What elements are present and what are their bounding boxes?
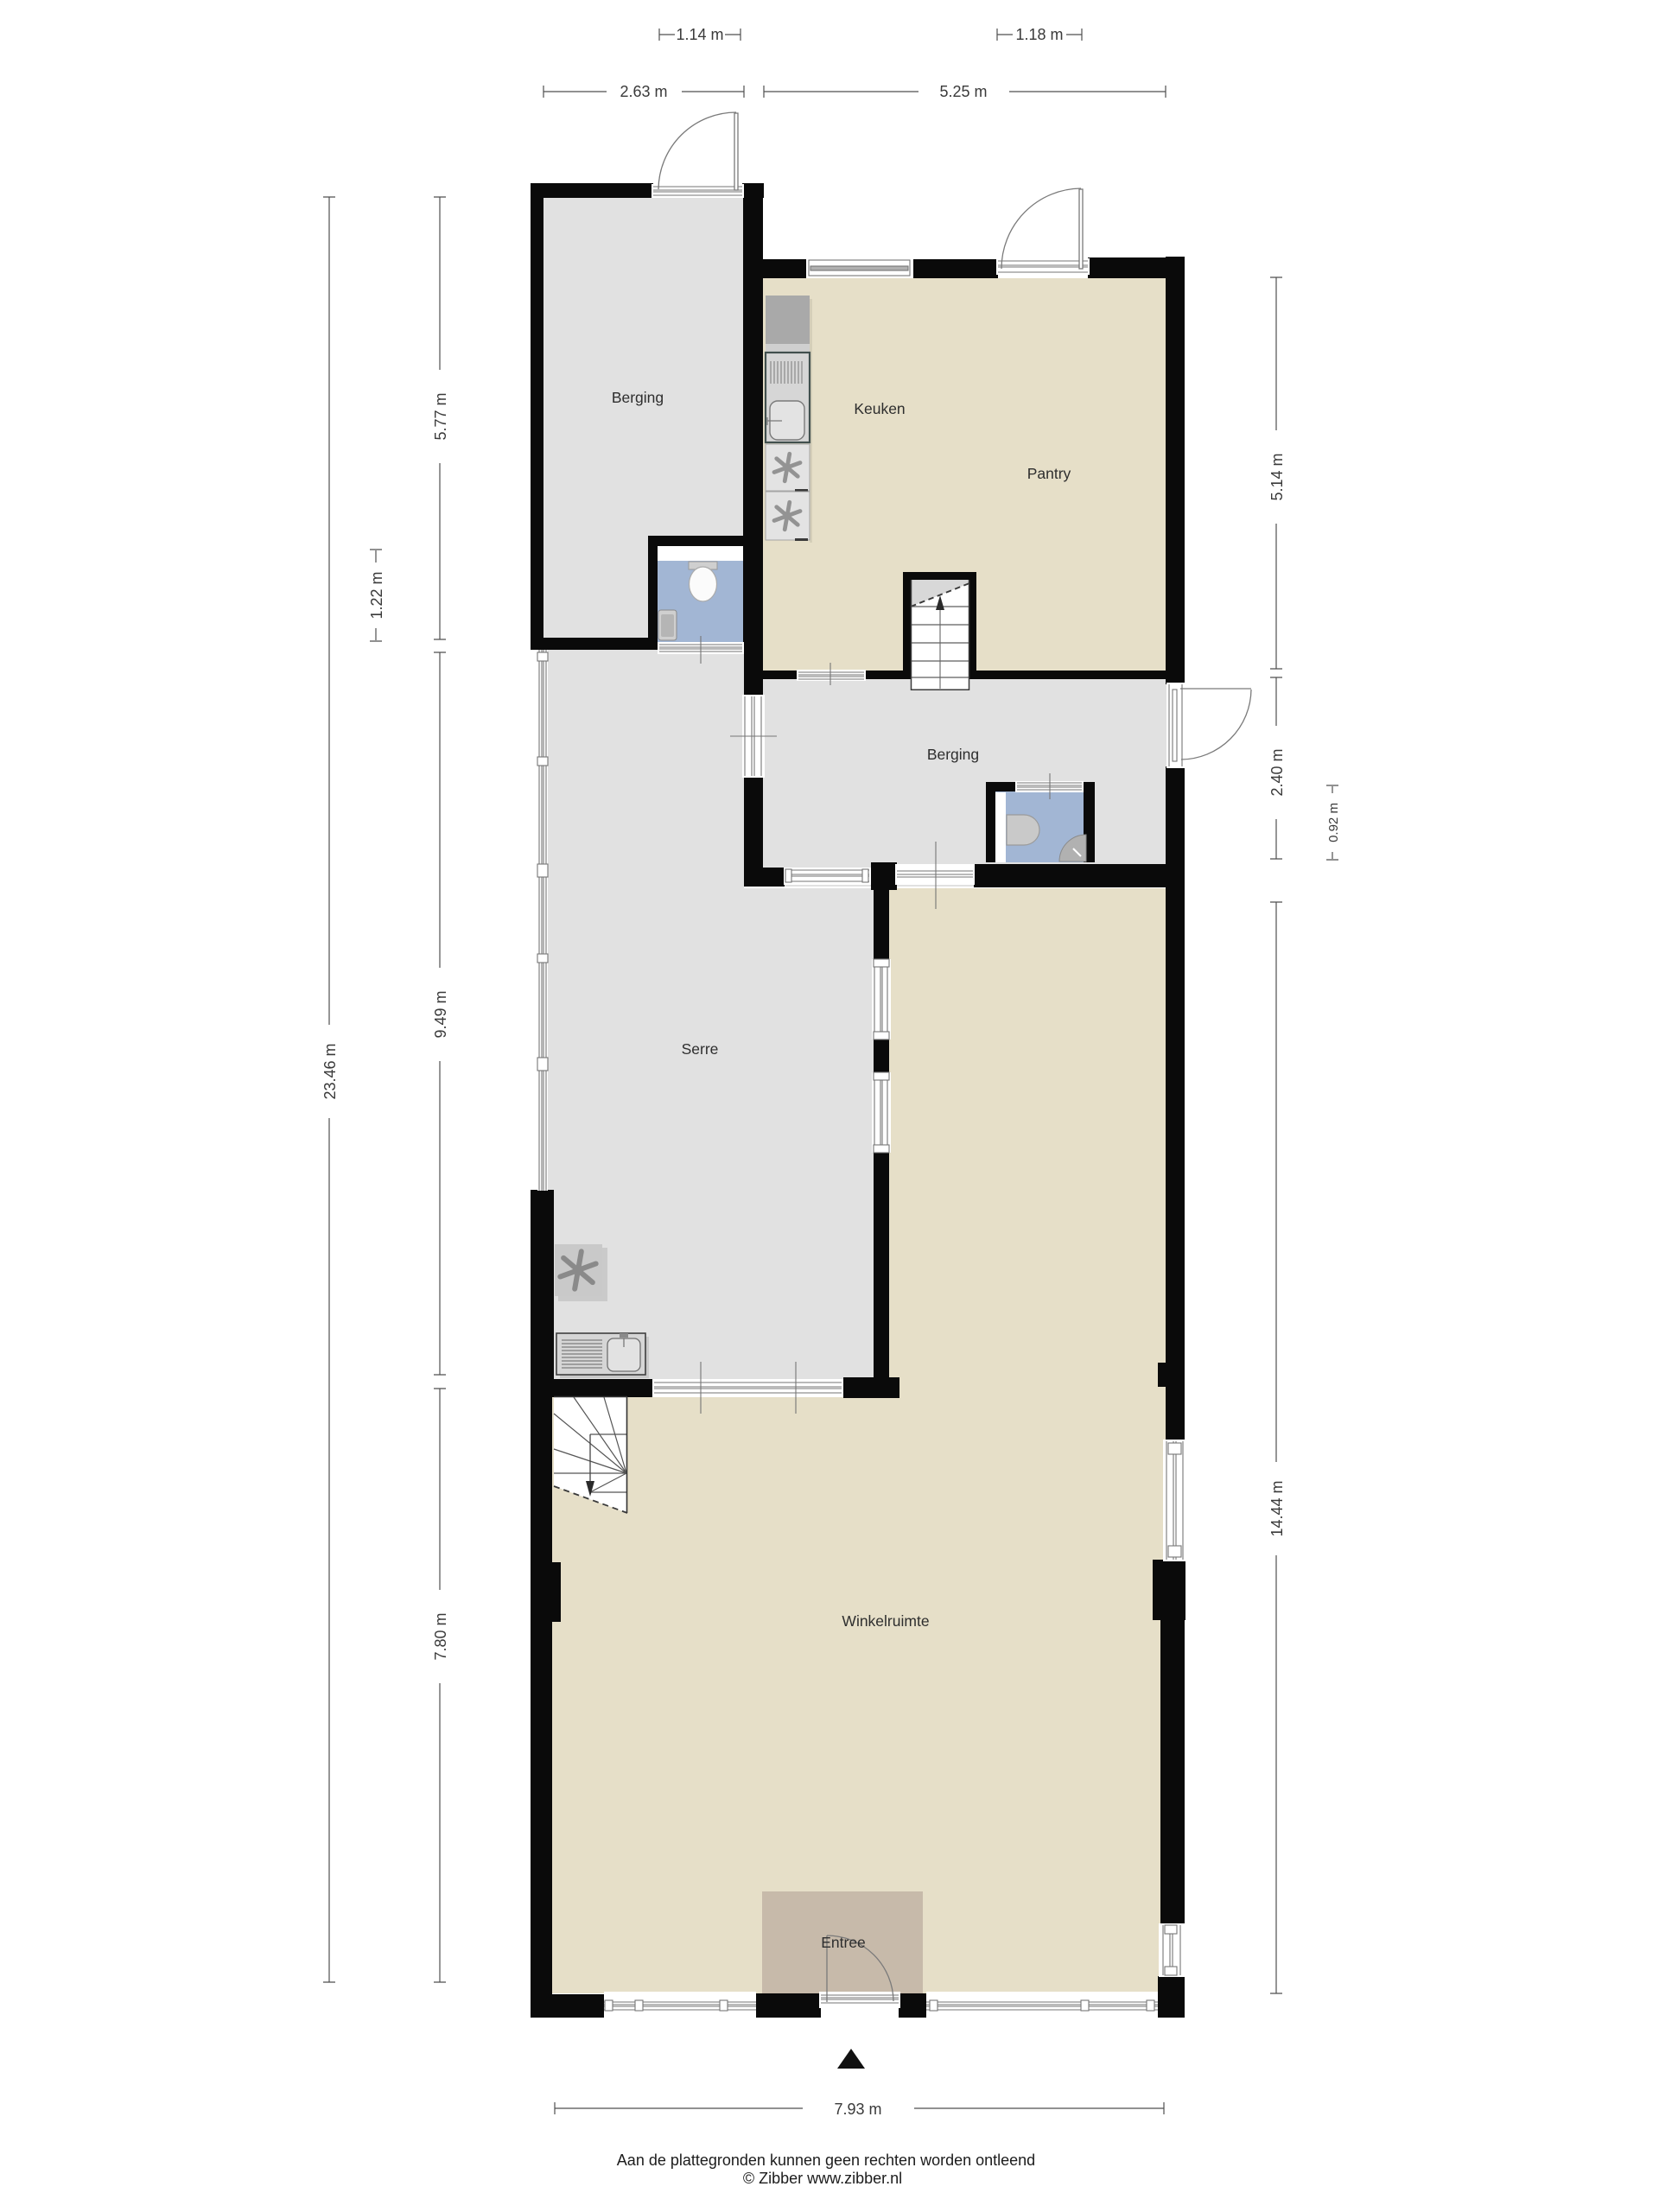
svg-text:© Zibber www.zibber.nl: © Zibber www.zibber.nl	[743, 2170, 902, 2187]
svg-text:23.46 m: 23.46 m	[321, 1043, 339, 1099]
svg-text:Berging: Berging	[927, 746, 979, 763]
svg-text:7.80 m: 7.80 m	[432, 1612, 449, 1660]
svg-text:Winkelruimte: Winkelruimte	[842, 1612, 929, 1630]
svg-text:9.49 m: 9.49 m	[432, 990, 449, 1038]
svg-text:7.93 m: 7.93 m	[834, 2101, 881, 2118]
svg-text:Keuken: Keuken	[854, 400, 905, 417]
svg-text:Berging: Berging	[612, 389, 664, 406]
svg-text:Entree: Entree	[821, 1934, 866, 1951]
svg-text:Aan de plattegronden kunnen ge: Aan de plattegronden kunnen geen rechten…	[617, 2152, 1035, 2169]
svg-text:5.77 m: 5.77 m	[432, 392, 449, 440]
svg-text:2.40 m: 2.40 m	[1268, 748, 1286, 796]
svg-text:Pantry: Pantry	[1027, 465, 1071, 482]
svg-text:1.18 m: 1.18 m	[1015, 26, 1063, 43]
svg-text:1.14 m: 1.14 m	[676, 26, 723, 43]
svg-text:0.92 m: 0.92 m	[1326, 803, 1341, 842]
svg-text:5.14 m: 5.14 m	[1268, 453, 1286, 500]
svg-text:Serre: Serre	[682, 1040, 719, 1058]
svg-text:2.63 m: 2.63 m	[620, 83, 667, 100]
svg-text:1.22 m: 1.22 m	[368, 571, 385, 619]
svg-text:14.44 m: 14.44 m	[1268, 1480, 1286, 1536]
svg-text:5.25 m: 5.25 m	[939, 83, 987, 100]
